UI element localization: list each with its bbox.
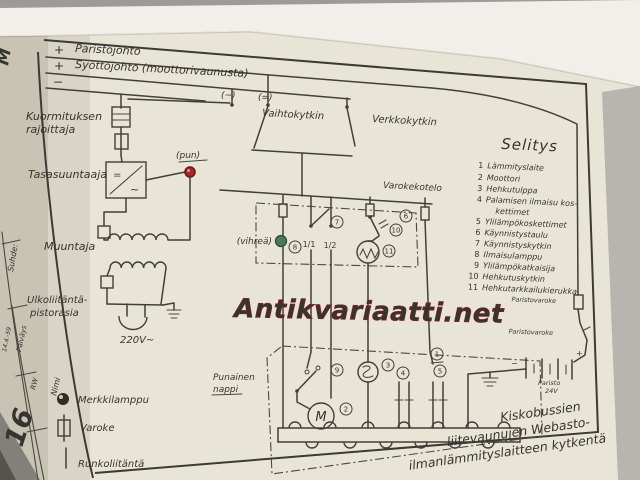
num-6: 6 [404, 213, 409, 221]
lamp-legend-label: Merkkilamppu [78, 395, 149, 406]
load-limiter-label-1: Kuormituksen [26, 110, 102, 123]
battery-name: Paristo [538, 379, 560, 387]
legend-num: 11 [468, 283, 479, 292]
motor-letter: M [315, 410, 326, 425]
red-lamp-highlight [187, 169, 190, 172]
num-1: 1 [435, 351, 439, 359]
schematic-drawing: Suhde: 14.4.-59 Päiväys RW Nimi 16 M + P… [0, 0, 640, 480]
terminal-1-1: 1/1 [303, 240, 316, 249]
num-11: 11 [385, 248, 394, 256]
legend-num: 5 [476, 217, 481, 226]
battery-plus: + [576, 349, 583, 358]
legend-num: 2 [478, 173, 483, 182]
num-5: 5 [438, 368, 442, 376]
load-limiter-label-2: rajoittaja [26, 123, 76, 136]
legend-num: 9 [474, 261, 479, 270]
num-4: 4 [401, 370, 406, 378]
minus-sign: − [53, 75, 63, 89]
legend-num: 3 [477, 184, 482, 193]
legend-num: 8 [474, 250, 479, 259]
ac-contact-label: (~) [221, 91, 236, 101]
rectifier-label: Tasasuuntaaja [28, 168, 107, 181]
frame-conn-legend-label: Runkoliitäntä [78, 459, 144, 470]
fuse-legend-label: Varoke [80, 423, 115, 434]
dc-symbol: = [113, 170, 121, 181]
book-page-photo: Suhde: 14.4.-59 Päiväys RW Nimi 16 M + P… [0, 0, 640, 480]
red-button-label-1: Punainen [213, 373, 255, 383]
red-button-label-2: nappi [213, 385, 239, 395]
legend-num: 10 [468, 272, 479, 281]
terminal-1-2: 1/2 [324, 241, 337, 250]
ext-socket-label-1: Ulkoliitäntä- [27, 295, 88, 306]
plus-sign-2: + [54, 59, 64, 73]
battery-fuse-label: Paristovaroke [511, 295, 556, 305]
indicator-lamp-icon [57, 393, 69, 405]
num-9: 9 [335, 367, 339, 375]
red-lamp-icon [185, 167, 195, 177]
legend-item: Moottori [487, 173, 522, 183]
vihrea-label: (vihreä) [237, 237, 272, 247]
legend-num: 7 [475, 239, 480, 248]
num-10: 10 [392, 227, 401, 235]
plus-sign-1: + [54, 43, 64, 57]
battery-switch-label: Paristovaroke [508, 327, 553, 337]
battery-minus: − [511, 359, 518, 368]
legend-title: Selitys [501, 135, 558, 155]
legend-item-cont: kettimet [495, 207, 530, 218]
ext-socket-label-2: pistorasia [29, 308, 79, 319]
legend-num: 4 [477, 195, 482, 204]
legend-num: 6 [475, 228, 480, 237]
watermark-text: Antikvariaatti.net [232, 294, 505, 330]
num-8: 8 [293, 244, 297, 252]
num-7: 7 [335, 219, 339, 227]
num-2: 2 [344, 406, 348, 414]
dc-contact-label: (=) [258, 93, 273, 103]
voltage-label: 220V~ [120, 335, 154, 346]
num-3: 3 [386, 362, 390, 370]
transformer-label: Muuntaja [44, 240, 96, 253]
pun-label: (pun) [176, 151, 200, 161]
green-lamp-icon [276, 236, 287, 247]
legend-num: 1 [478, 161, 483, 170]
battery-voltage: 24V [545, 387, 558, 395]
ac-symbol: ~ [130, 183, 139, 196]
